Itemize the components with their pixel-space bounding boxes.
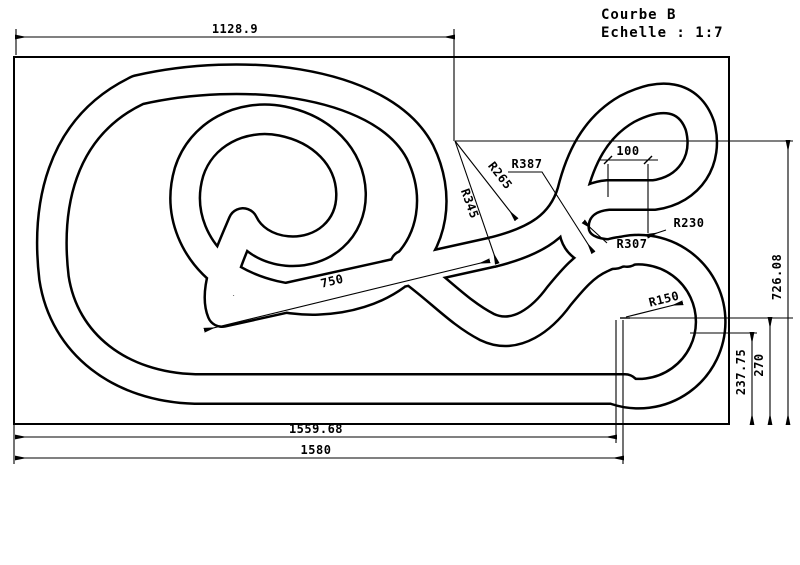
drawing-sheet: 1128.9 1559.68 1580 100 750 726.08 270 2… — [0, 0, 800, 565]
leader-r230 — [648, 230, 666, 236]
dim-right-height-label: 726.08 — [770, 254, 784, 300]
dim-bottom-inner-label: 1559.68 — [289, 422, 343, 436]
radius-r387-label: R387 — [512, 157, 543, 171]
title-block: Courbe B Echelle : 1:7 — [601, 7, 724, 41]
radius-r345-label: R345 — [458, 187, 482, 221]
drawing-scale: Echelle : 1:7 — [601, 25, 724, 41]
radius-r150-label: R150 — [647, 289, 680, 310]
dim-center-height-label: 270 — [752, 353, 766, 376]
radius-r230-label: R230 — [674, 216, 705, 230]
drawing-title: Courbe B — [601, 7, 676, 23]
dim-offset-height-label: 237.75 — [734, 349, 748, 395]
dim-top-width-label: 1128.9 — [212, 22, 258, 36]
radius-r307-label: R307 — [617, 237, 648, 251]
dim-bottom-outer-label: 1580 — [301, 443, 332, 457]
track-band-white — [52, 79, 711, 393]
track-plan-drawing: 1128.9 1559.68 1580 100 750 726.08 270 2… — [0, 0, 800, 565]
dim-lane-gap-label: 100 — [616, 144, 639, 158]
